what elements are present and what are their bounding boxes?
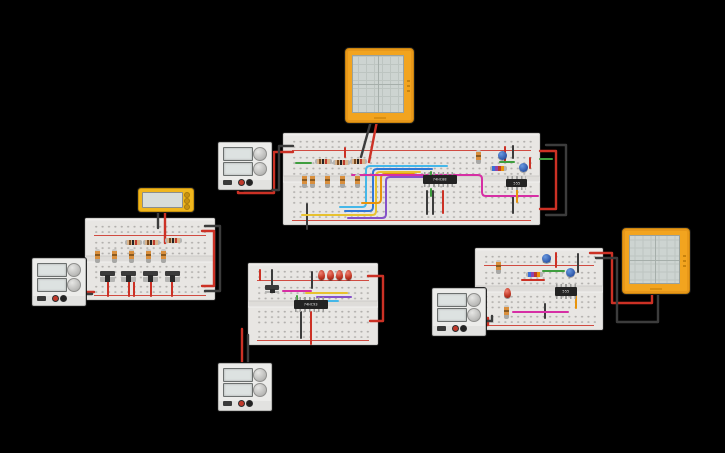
resistor[interactable] bbox=[165, 238, 182, 243]
resistor[interactable] bbox=[310, 174, 315, 188]
wire-red-rail-loop[interactable] bbox=[368, 276, 383, 321]
psu-voltage-knob[interactable] bbox=[253, 147, 267, 161]
psu-current-display bbox=[223, 383, 253, 397]
resistor[interactable] bbox=[302, 174, 307, 188]
ic-pins bbox=[424, 184, 456, 187]
psu-current-display bbox=[437, 308, 467, 322]
psu-voltage-knob[interactable] bbox=[467, 293, 481, 307]
psu-positive-terminal[interactable] bbox=[238, 179, 245, 186]
led-red[interactable] bbox=[318, 270, 325, 280]
power-supply-1[interactable] bbox=[218, 142, 272, 190]
power-supply-4[interactable] bbox=[432, 288, 486, 336]
psu-current-knob[interactable] bbox=[253, 162, 267, 176]
resistor[interactable] bbox=[490, 166, 507, 171]
resistor[interactable] bbox=[340, 174, 345, 188]
slide-switch[interactable] bbox=[121, 271, 136, 282]
psu-current-knob[interactable] bbox=[467, 308, 481, 322]
psu-voltage-display bbox=[223, 147, 253, 161]
ic-label: 555 bbox=[555, 287, 577, 296]
ic-555-timer[interactable]: 555 bbox=[506, 176, 527, 190]
ic-label: 74HC08 bbox=[423, 175, 457, 184]
multimeter-mode-button[interactable] bbox=[184, 204, 190, 210]
slide-switch[interactable] bbox=[143, 271, 158, 282]
psu-power-button[interactable] bbox=[437, 326, 446, 331]
psu-voltage-display bbox=[437, 293, 467, 307]
oscilloscope-screen bbox=[352, 55, 404, 113]
resistor[interactable] bbox=[146, 249, 151, 263]
psu-current-knob[interactable] bbox=[67, 278, 81, 292]
resistor[interactable] bbox=[315, 159, 332, 164]
power-supply-3[interactable] bbox=[218, 363, 272, 411]
resistor[interactable] bbox=[333, 160, 350, 165]
psu-negative-terminal[interactable] bbox=[246, 179, 253, 186]
ic-74hc93[interactable]: 74HC93 bbox=[294, 297, 328, 312]
psu-power-button[interactable] bbox=[223, 180, 232, 185]
ic-pins bbox=[295, 309, 327, 312]
multimeter-1[interactable] bbox=[138, 188, 194, 212]
ic-74hc08[interactable]: 74HC08 bbox=[423, 172, 457, 187]
psu-power-button[interactable] bbox=[223, 401, 232, 406]
psu-negative-terminal[interactable] bbox=[246, 400, 253, 407]
psu-positive-terminal[interactable] bbox=[452, 325, 459, 332]
oscilloscope-label bbox=[374, 117, 386, 119]
psu-current-knob[interactable] bbox=[253, 383, 267, 397]
resistor[interactable] bbox=[526, 272, 543, 277]
resistor[interactable] bbox=[325, 174, 330, 188]
psu-current-display bbox=[37, 278, 67, 292]
resistor[interactable] bbox=[476, 150, 481, 164]
ic-555-timer[interactable]: 555 bbox=[555, 284, 577, 299]
led-red[interactable] bbox=[327, 270, 334, 280]
slide-switch[interactable] bbox=[100, 271, 115, 282]
oscilloscope-controls[interactable] bbox=[683, 255, 686, 267]
psu-negative-terminal[interactable] bbox=[60, 295, 67, 302]
psu-voltage-display bbox=[223, 368, 253, 382]
psu-voltage-knob[interactable] bbox=[253, 368, 267, 382]
psu-voltage-display bbox=[37, 263, 67, 277]
ic-label: 74HC93 bbox=[294, 300, 328, 309]
resistor[interactable] bbox=[125, 240, 142, 245]
oscilloscope-controls[interactable] bbox=[407, 80, 410, 92]
capacitor[interactable] bbox=[566, 268, 575, 277]
wire-black-rail-loop[interactable] bbox=[205, 226, 220, 291]
resistor[interactable] bbox=[355, 174, 360, 188]
slide-switch[interactable] bbox=[165, 271, 180, 282]
oscilloscope-label bbox=[650, 288, 662, 290]
wire-black-scope1-probe[interactable] bbox=[361, 121, 371, 157]
ic-pins bbox=[507, 187, 526, 190]
capacitor[interactable] bbox=[542, 254, 551, 263]
resistor[interactable] bbox=[504, 305, 509, 319]
wire-red-rail-loop[interactable] bbox=[202, 231, 214, 286]
psu-positive-terminal[interactable] bbox=[52, 295, 59, 302]
psu-power-button[interactable] bbox=[37, 296, 46, 301]
led-red[interactable] bbox=[345, 270, 352, 280]
resistor[interactable] bbox=[161, 249, 166, 263]
ic-pins bbox=[556, 296, 576, 299]
resistor[interactable] bbox=[129, 249, 134, 263]
led-red[interactable] bbox=[504, 288, 511, 298]
resistor[interactable] bbox=[112, 249, 117, 263]
multimeter-screen bbox=[142, 192, 183, 208]
resistor[interactable] bbox=[496, 260, 501, 274]
slide-switch[interactable] bbox=[265, 285, 279, 293]
psu-voltage-knob[interactable] bbox=[67, 263, 81, 277]
oscilloscope-screen bbox=[629, 235, 680, 284]
psu-negative-terminal[interactable] bbox=[460, 325, 467, 332]
oscilloscope-2[interactable] bbox=[622, 228, 690, 294]
psu-positive-terminal[interactable] bbox=[238, 400, 245, 407]
resistor[interactable] bbox=[143, 240, 160, 245]
resistor[interactable] bbox=[350, 159, 367, 164]
capacitor[interactable] bbox=[519, 163, 528, 172]
ic-label: 555 bbox=[506, 179, 527, 187]
capacitor[interactable] bbox=[498, 151, 507, 160]
oscilloscope-1[interactable] bbox=[345, 48, 414, 123]
led-red[interactable] bbox=[336, 270, 343, 280]
power-supply-2[interactable] bbox=[32, 258, 86, 306]
circuit-canvas: 74HC08 555 74HC93 555 bbox=[0, 0, 725, 453]
resistor[interactable] bbox=[95, 249, 100, 263]
psu-current-display bbox=[223, 162, 253, 176]
